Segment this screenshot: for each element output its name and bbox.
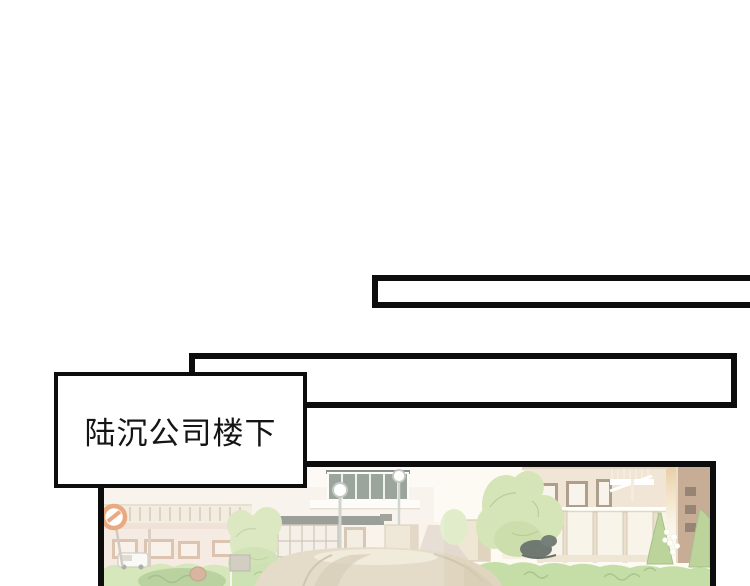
caption-text: 陆沉公司楼下 — [85, 408, 277, 453]
comic-page: 陆沉公司楼下 — [0, 0, 750, 586]
caption-box: 陆沉公司楼下 — [54, 372, 307, 488]
narration-box-top — [372, 275, 750, 308]
